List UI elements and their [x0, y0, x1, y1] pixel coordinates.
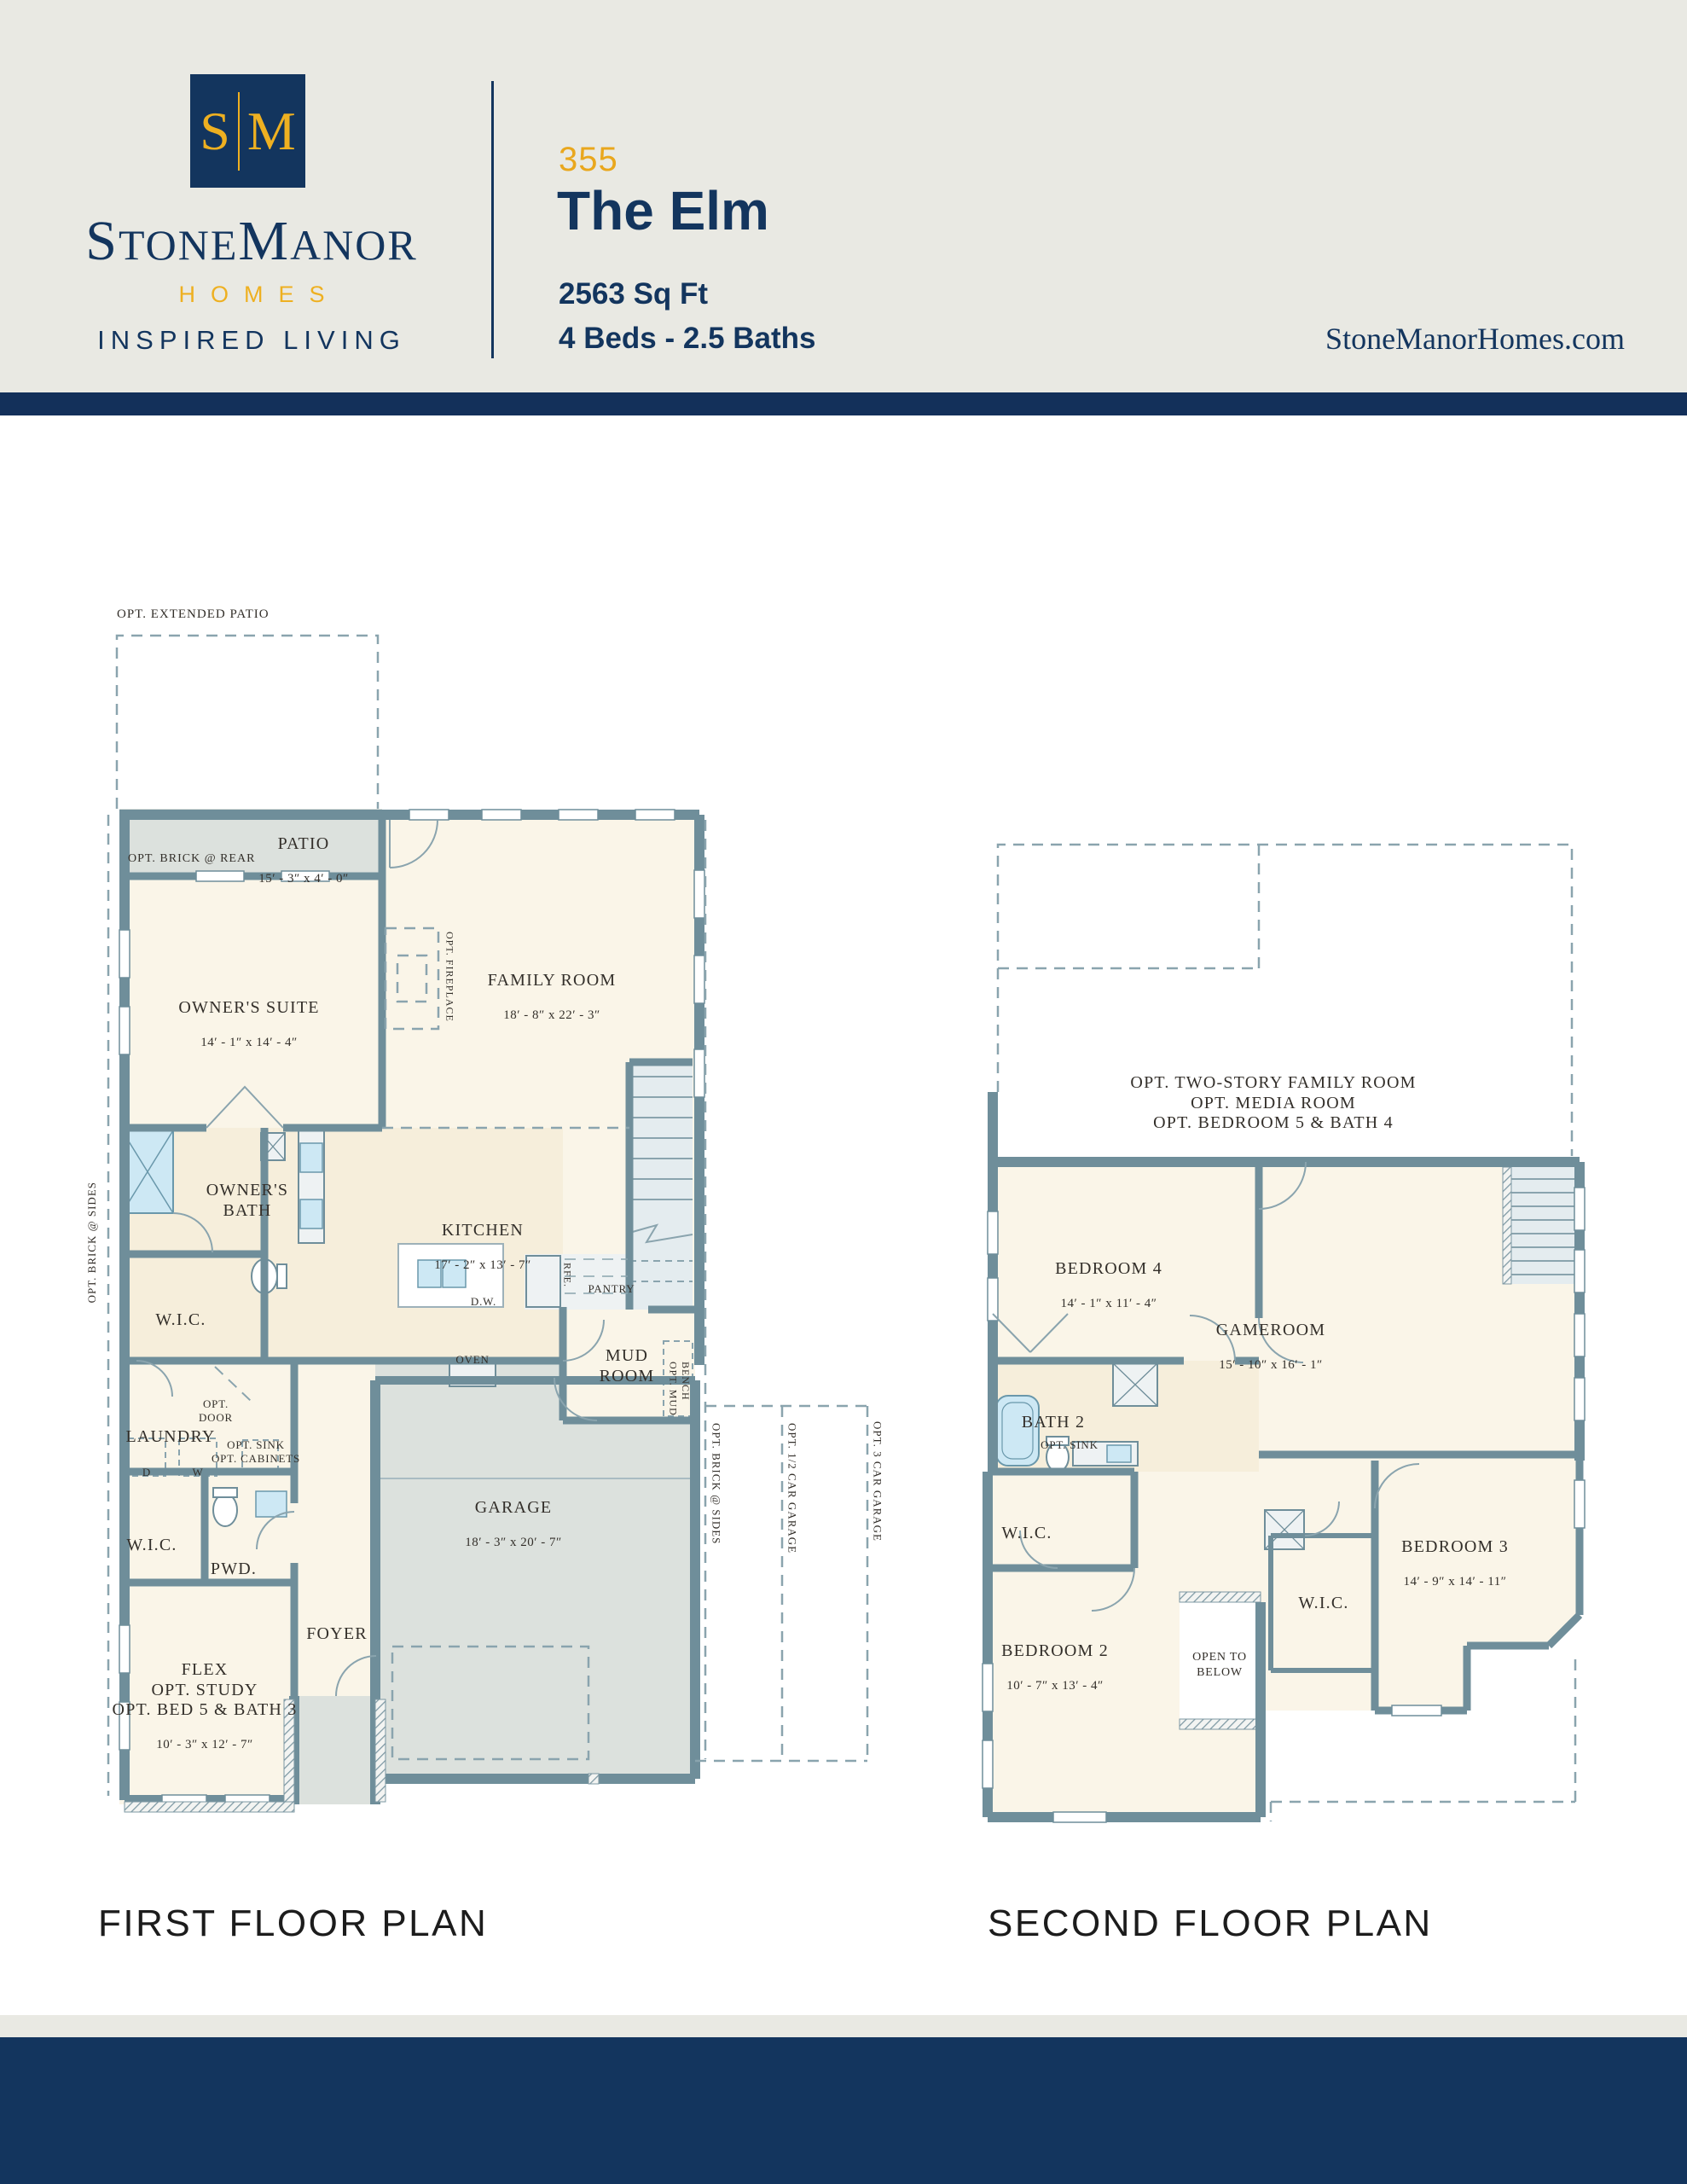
opt-half-car-garage-label: OPT. 1/2 CAR GARAGE [786, 1423, 799, 1554]
website-url: StoneManorHomes.com [1325, 321, 1625, 357]
brand-homes: HOMES [47, 282, 456, 308]
powder-label: PWD. [211, 1544, 257, 1595]
sink-icon [300, 1143, 322, 1172]
brand-m: M [238, 210, 290, 272]
mud-room-label: MUD ROOM [600, 1331, 655, 1402]
flex-label: FLEX OPT. STUDY OPT. BED 5 & BATH 3 10′ … [113, 1645, 298, 1768]
sink-icon [1107, 1445, 1131, 1462]
sink-icon [300, 1199, 322, 1228]
opt-flex-space-label: OPT. TWO-STORY FAMILY ROOM OPT. MEDIA RO… [1130, 1058, 1416, 1149]
plan-title: The Elm [557, 179, 769, 242]
header: S M STONEMANOR HOMES INSPIRED LIVING 355… [0, 0, 1687, 392]
opt-extended-patio-label: OPT. EXTENDED PATIO [117, 607, 270, 622]
logo-letter-m: M [247, 104, 296, 159]
dryer-label: D [142, 1450, 151, 1495]
family-room-label: FAMILY ROOM 18′ - 8″ x 22′ - 3″ [488, 955, 617, 1038]
footer-gray-band [0, 2015, 1687, 2037]
garage-area [375, 1363, 695, 1781]
plan-sqft: 2563 Sq Ft [559, 277, 708, 311]
brand-tone: TONE [119, 221, 238, 269]
footer: EQUAL HOUSING OPPORTUNITY * All informat… [0, 2037, 1687, 2184]
kitchen-label: KITCHEN 17′ - 2″ x 13′ - 7″ [434, 1205, 531, 1288]
owners-bath-label: OWNER'S BATH [206, 1165, 288, 1236]
brand-anor: ANOR [290, 221, 418, 269]
opt-sink-cabinets-label: OPT. SINK OPT. CABINETS [212, 1423, 300, 1482]
refrigerator-label: RFE. [561, 1263, 573, 1287]
logo-divider-line [238, 92, 240, 171]
header-divider [491, 81, 494, 358]
brochure-page: S M STONEMANOR HOMES INSPIRED LIVING 355… [0, 0, 1687, 2184]
dishwasher-label: D.W. [471, 1280, 496, 1324]
stonemanor-logo-mark: S M [190, 74, 305, 188]
opt-3-car-garage-label: OPT. 3 CAR GARAGE [871, 1421, 884, 1542]
refrigerator [526, 1256, 560, 1307]
bedroom3-label: BEDROOM 3 14′ - 9″ x 14′ - 11″ [1401, 1522, 1509, 1605]
plan-beds-baths: 4 Beds - 2.5 Baths [559, 322, 816, 356]
gameroom-label: GAMEROOM 15′ - 10″ x 16′ - 1″ [1216, 1305, 1326, 1388]
toilet-icon [213, 1494, 237, 1526]
opt-brick-rear-label: OPT. BRICK @ REAR [128, 852, 255, 866]
brand-s: S [85, 210, 119, 272]
front-stoop [294, 1696, 375, 1804]
second-floor-title: SECOND FLOOR PLAN [988, 1902, 1433, 1945]
wic-label: W.I.C. [155, 1295, 206, 1346]
wic2-label: W.I.C. [126, 1520, 177, 1571]
header-rule [0, 392, 1687, 415]
wic-right-label: W.I.C. [1298, 1578, 1348, 1629]
patio-label: PATIO 15′ - 3″ x 4′ - 0″ [258, 819, 349, 902]
opt-brick-sides-left-label: OPT. BRICK @ SIDES [85, 1182, 99, 1303]
garage-label: GARAGE 18′ - 3″ x 20′ - 7″ [465, 1483, 562, 1565]
open-to-below-label: OPEN TO BELOW [1192, 1635, 1247, 1695]
brand-tagline: INSPIRED LIVING [47, 325, 456, 356]
stairs-area [629, 1062, 693, 1310]
foyer-label: FOYER [306, 1609, 368, 1660]
opt-sink-label: OPT. SINK [1041, 1423, 1099, 1467]
bedroom4-label: BEDROOM 4 14′ - 1″ x 11′ - 4″ [1055, 1244, 1162, 1327]
brand-name: STONEMANOR [47, 213, 456, 270]
first-floor-title: FIRST FLOOR PLAN [98, 1902, 488, 1945]
wic-left-label: W.I.C. [1001, 1508, 1052, 1560]
opt-mud-bench-label: OPT. MUD BENCH [667, 1362, 692, 1416]
washer-label: W [192, 1450, 203, 1495]
logo-letter-s: S [200, 104, 230, 159]
plan-number: 355 [559, 141, 618, 179]
opt-fireplace-label: OPT. FIREPLACE [443, 932, 455, 1022]
stairs-area [1511, 1167, 1580, 1284]
pantry-label: PANTRY [588, 1267, 635, 1311]
bedroom2-label: BEDROOM 2 10′ - 7″ x 13′ - 4″ [1001, 1626, 1109, 1709]
oven-label: OVEN [455, 1338, 489, 1382]
opt-brick-sides-right-label: OPT. BRICK @ SIDES [710, 1423, 723, 1544]
owners-suite-label: OWNER'S SUITE 14′ - 1″ x 14′ - 4″ [178, 983, 319, 1066]
